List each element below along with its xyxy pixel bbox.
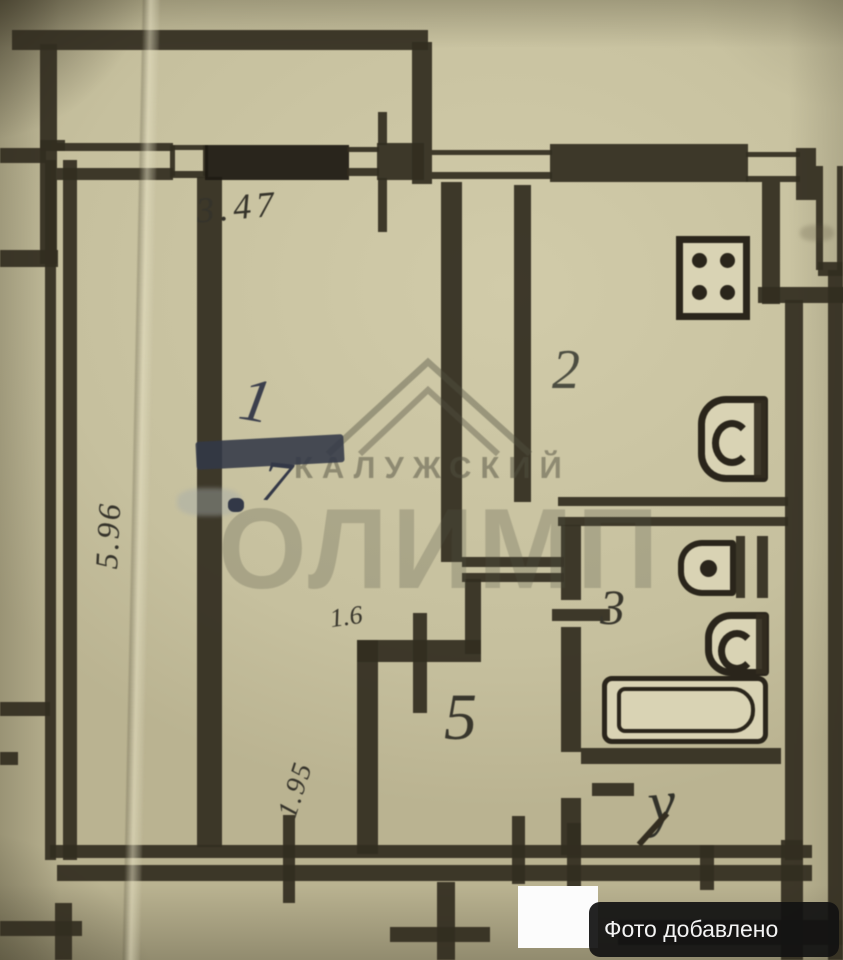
- stove-icon: [676, 236, 750, 320]
- wall-segment: [413, 613, 427, 713]
- wall-segment: [756, 614, 767, 674]
- wall-segment: [283, 815, 295, 903]
- wall-segment: [57, 865, 812, 881]
- wall-segment: [754, 400, 766, 478]
- wall-segment: [561, 627, 581, 752]
- room-number-hall: 5: [444, 680, 477, 756]
- bathtub-inner-icon: [617, 687, 755, 733]
- wall-segment: [347, 147, 379, 152]
- wall-segment: [205, 145, 349, 180]
- dimension-hall-height: 1.95: [272, 758, 320, 822]
- wall-segment: [0, 702, 50, 716]
- avito-badge-label: Фото добавлено Авито: [604, 916, 778, 960]
- toilet-tank-icon: [736, 536, 745, 598]
- wall-segment: [0, 752, 18, 765]
- sink-basin-icon: [712, 420, 752, 466]
- wall-segment: [512, 816, 525, 884]
- paper-stain: [800, 225, 834, 241]
- room-number-bath: 3: [600, 578, 625, 636]
- toilet-tank-icon: [757, 536, 768, 598]
- room-number-living: 1: [234, 364, 277, 439]
- wall-segment: [377, 143, 424, 180]
- toilet-bowl-icon: [700, 560, 717, 577]
- wall-segment: [45, 160, 56, 860]
- wall-segment: [700, 845, 714, 890]
- wall-segment: [592, 783, 634, 796]
- wall-segment: [837, 166, 843, 270]
- wall-segment: [378, 112, 387, 145]
- wall-segment: [550, 144, 748, 182]
- wall-segment: [746, 152, 800, 157]
- wall-segment: [796, 148, 816, 200]
- floorplan-drawing: КАЛУЖСКИЙ ОЛИМП 3.47 5.96 1.6 1.95 1 7 2…: [0, 0, 843, 960]
- dimension-top-width: 3.47: [194, 182, 280, 231]
- room-number-kitchen: 2: [552, 338, 580, 402]
- avito-photo-badge: Фото добавлено Авито: [589, 902, 839, 957]
- wall-segment: [50, 845, 812, 858]
- dimension-left-height: 5.96: [88, 500, 129, 570]
- ink-dot: [228, 498, 244, 512]
- white-cover-patch: [518, 886, 598, 948]
- wall-segment: [785, 300, 803, 860]
- washbasin-bowl-icon: [718, 630, 756, 672]
- wall-segment: [432, 150, 552, 155]
- wall-segment: [828, 270, 843, 960]
- watermark-agency-logo-text: ОЛИМП: [218, 484, 710, 615]
- wall-segment: [55, 903, 72, 960]
- wall-segment: [378, 178, 387, 232]
- house-roof-watermark-icon: [322, 356, 534, 458]
- wall-segment: [432, 172, 552, 179]
- wall-segment: [347, 168, 379, 176]
- wall-segment: [816, 166, 823, 270]
- dimension-niche-width: 1.6: [328, 600, 364, 634]
- wall-segment: [437, 882, 455, 960]
- wall-segment: [170, 145, 175, 176]
- floorplan-photo: КАЛУЖСКИЙ ОЛИМП 3.47 5.96 1.6 1.95 1 7 2…: [0, 0, 843, 960]
- wall-segment: [357, 640, 378, 854]
- wall-segment: [581, 748, 781, 764]
- wall-segment: [762, 182, 780, 304]
- wall-segment: [63, 160, 77, 860]
- wall-segment: [12, 30, 428, 50]
